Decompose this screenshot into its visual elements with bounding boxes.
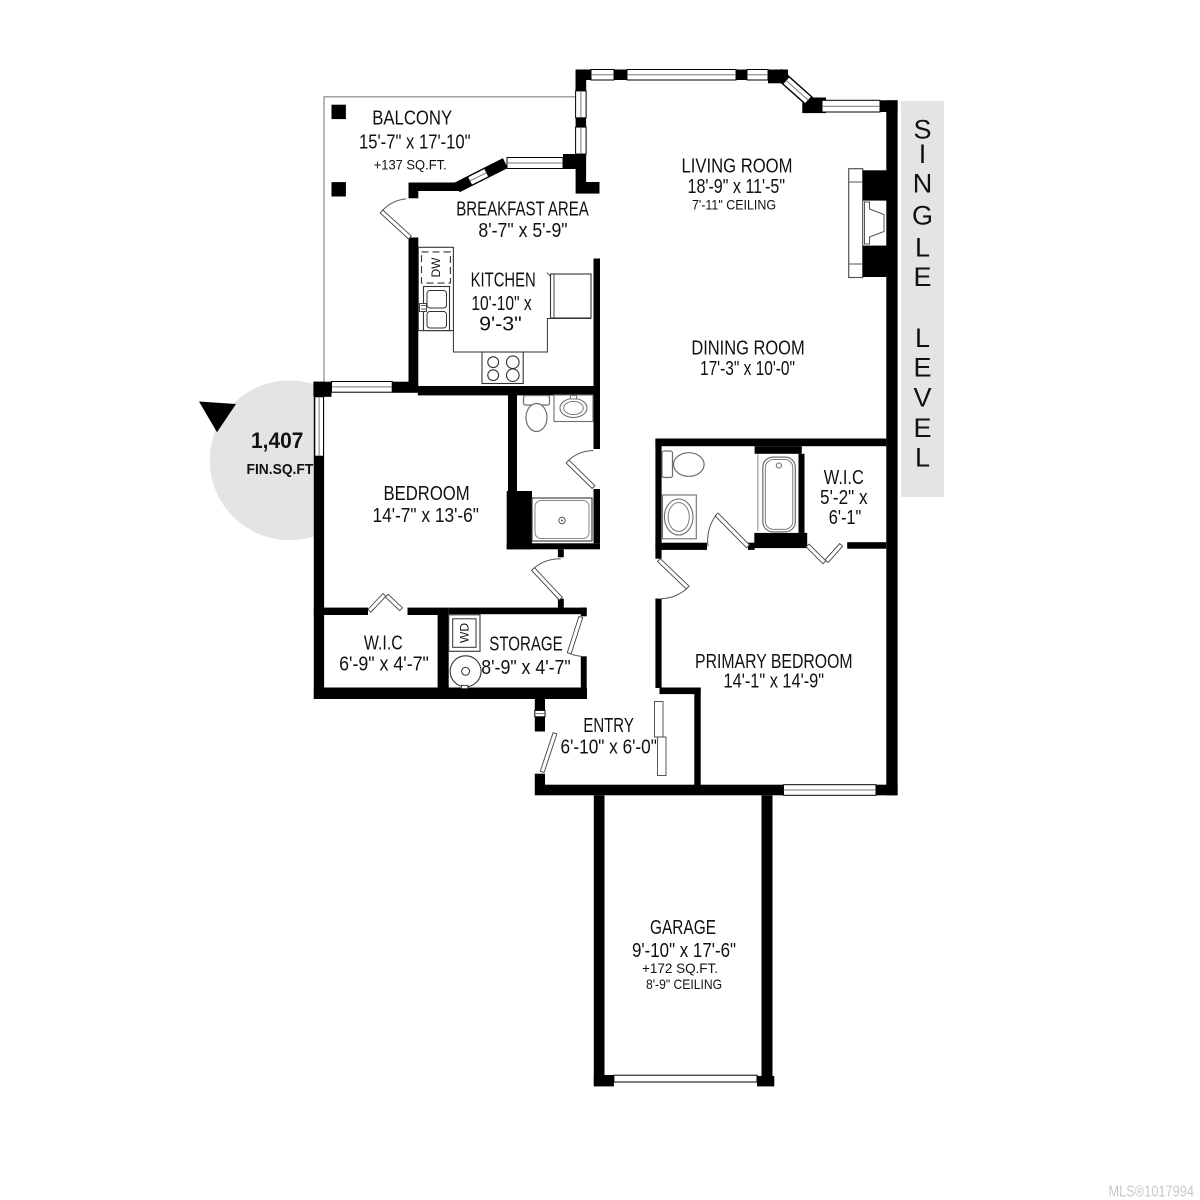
svg-text:1,407: 1,407 — [251, 428, 303, 453]
svg-text:GARAGE: GARAGE — [650, 917, 716, 939]
svg-text:E: E — [913, 413, 931, 443]
svg-text:5'-2" x: 5'-2" x — [820, 487, 868, 509]
svg-text:DW: DW — [429, 257, 443, 278]
svg-text:STORAGE: STORAGE — [489, 634, 562, 656]
svg-text:14'-7" x 13'-6": 14'-7" x 13'-6" — [373, 505, 479, 527]
svg-text:6'-1": 6'-1" — [829, 507, 862, 529]
svg-text:+137 SQ.FT.: +137 SQ.FT. — [374, 156, 447, 172]
svg-text:15'-7" x 17'-10": 15'-7" x 17'-10" — [359, 132, 471, 154]
svg-text:BREAKFAST AREA: BREAKFAST AREA — [456, 199, 589, 221]
svg-text:18'-9" x 11'-5": 18'-9" x 11'-5" — [688, 176, 786, 198]
svg-text:8'-7" x 5'-9": 8'-7" x 5'-9" — [478, 220, 567, 242]
svg-text:+172 SQ.FT.: +172 SQ.FT. — [642, 960, 718, 976]
svg-text:MLS®1017994: MLS®1017994 — [1109, 1184, 1195, 1200]
svg-text:8'-9" CEILING: 8'-9" CEILING — [646, 976, 722, 992]
svg-text:W.I.C: W.I.C — [364, 633, 403, 655]
svg-text:V: V — [913, 383, 931, 413]
svg-text:G: G — [912, 201, 933, 231]
svg-text:17'-3" x 10'-0": 17'-3" x 10'-0" — [700, 358, 795, 380]
svg-text:DINING ROOM: DINING ROOM — [691, 338, 804, 360]
svg-text:BALCONY: BALCONY — [372, 107, 452, 129]
svg-text:WD: WD — [457, 623, 471, 643]
svg-text:8'-9" x 4'-7": 8'-9" x 4'-7" — [481, 657, 570, 679]
svg-text:BEDROOM: BEDROOM — [384, 483, 470, 505]
svg-text:L: L — [915, 442, 930, 472]
svg-text:I: I — [919, 139, 927, 169]
svg-text:LIVING ROOM: LIVING ROOM — [682, 156, 793, 178]
svg-text:6'-10" x 6'-0": 6'-10" x 6'-0" — [561, 736, 657, 758]
svg-text:W.I.C: W.I.C — [824, 467, 864, 489]
svg-text:9'-10" x 17'-6": 9'-10" x 17'-6" — [632, 940, 736, 962]
svg-text:10'-10" x: 10'-10" x — [471, 293, 531, 315]
svg-text:L: L — [915, 233, 930, 263]
svg-text:FIN.SQ.FT: FIN.SQ.FT — [247, 461, 314, 478]
svg-text:E: E — [913, 262, 931, 292]
svg-text:6'-9" x 4'-7": 6'-9" x 4'-7" — [339, 654, 429, 676]
svg-text:14'-1" x 14'-9": 14'-1" x 14'-9" — [724, 671, 825, 693]
svg-text:N: N — [913, 169, 933, 199]
svg-text:E: E — [913, 352, 931, 382]
svg-text:ENTRY: ENTRY — [583, 715, 633, 737]
svg-text:7'-11" CEILING: 7'-11" CEILING — [692, 197, 776, 213]
svg-text:L: L — [915, 323, 930, 353]
svg-text:9'-3": 9'-3" — [479, 313, 522, 335]
svg-text:KITCHEN: KITCHEN — [471, 270, 536, 292]
